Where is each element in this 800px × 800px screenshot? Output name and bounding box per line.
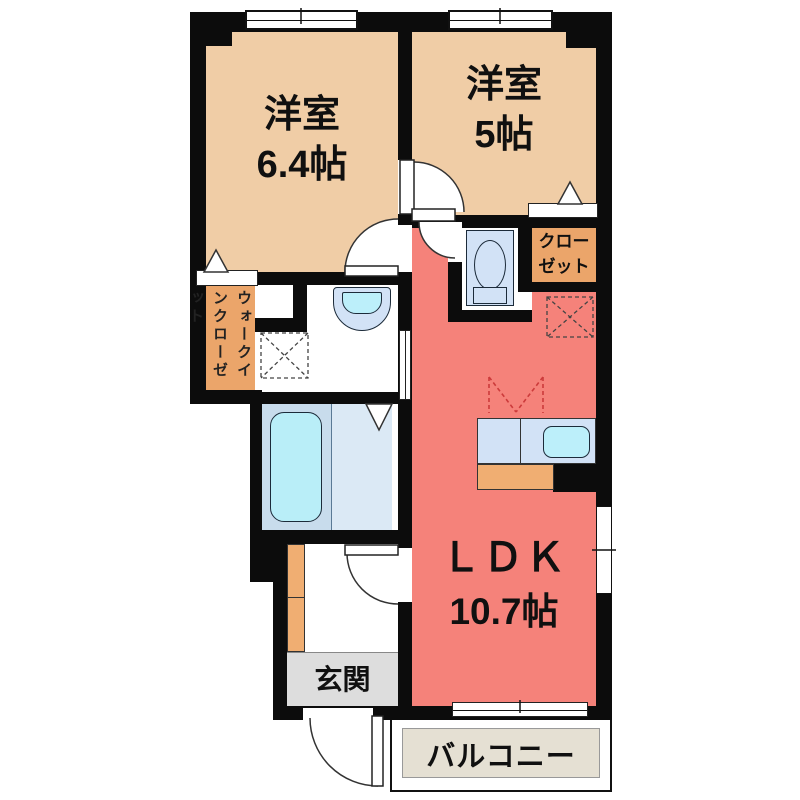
- wall-right: [596, 12, 612, 720]
- wall-bath-left: [250, 390, 262, 544]
- doorway-hall: [396, 548, 412, 602]
- shoe-cabinet-lower: [287, 597, 305, 652]
- ldk-fridge-nook: [532, 292, 596, 322]
- window-sash-line: [453, 710, 587, 711]
- door-line: [405, 331, 406, 399]
- entrance-label: 玄関: [287, 662, 398, 699]
- wall-kitchen-block: [553, 462, 596, 492]
- doorway-bedroom2: [398, 160, 412, 214]
- window-sash-line: [450, 20, 551, 21]
- window-ldk-right: [596, 506, 612, 594]
- toilet-bowl: [474, 240, 506, 290]
- wall-closet-left: [518, 215, 532, 292]
- kitchen-sink: [543, 426, 590, 458]
- bathroom-wash-zone: [332, 404, 392, 530]
- balcony-label: バルコニー: [402, 738, 600, 776]
- closet-label: クローゼット: [532, 230, 596, 279]
- balcony-sliding-door: [452, 702, 588, 717]
- wall-closet-bottom: [518, 282, 596, 292]
- shoe-cabinet-upper: [287, 544, 305, 598]
- doorway-toilet: [448, 222, 462, 262]
- bathtub: [270, 412, 322, 522]
- closet-line1: クロー: [539, 232, 590, 251]
- ldk-name: ＬＤＫ: [441, 536, 567, 580]
- window-sash-line: [247, 20, 356, 21]
- bedroom1-label: 洋室6.4帖: [206, 90, 398, 190]
- door-leaf-entrance: [372, 716, 383, 786]
- wall-toilet-bottom: [448, 310, 532, 322]
- room-ldk: [412, 322, 596, 706]
- wall-washroom-bath: [250, 392, 398, 404]
- bedroom1-name: 洋室: [264, 94, 340, 136]
- ldk-label: ＬＤＫ10.7帖: [412, 532, 596, 638]
- wall-hall-left: [273, 544, 287, 720]
- wall-wic-step: [255, 318, 307, 332]
- kitchen-cabinet: [477, 464, 554, 490]
- floorplan: 洋室6.4帖 洋室5帖 クローゼット ウォークインクローゼット ＬＤＫ10.7帖…: [0, 0, 800, 800]
- closet-folding-door: [528, 203, 598, 218]
- doorway-entrance: [303, 708, 373, 720]
- window-bedroom1: [245, 10, 358, 30]
- bedroom2-label: 洋室5帖: [412, 60, 596, 160]
- toilet-tank: [473, 287, 507, 304]
- bedroom1-size: 6.4帖: [257, 144, 348, 186]
- ldk-size: 10.7帖: [449, 591, 558, 632]
- wall-left: [190, 12, 206, 402]
- ldk-corridor: [412, 228, 448, 322]
- washbasin-bowl: [342, 292, 382, 314]
- bedroom2-size: 5帖: [474, 114, 533, 156]
- doorway-bedroom1: [398, 225, 412, 272]
- kitchen-counter-divider: [520, 419, 521, 463]
- wic-label: ウォークインクローゼット: [207, 290, 255, 390]
- closet-line2: ゼット: [539, 257, 590, 276]
- window-bedroom2: [448, 10, 553, 30]
- washroom-sliding-door: [399, 330, 411, 400]
- door-arc-entrance: [310, 718, 378, 786]
- bedroom2-name: 洋室: [466, 64, 542, 106]
- wic-folding-door: [196, 270, 258, 286]
